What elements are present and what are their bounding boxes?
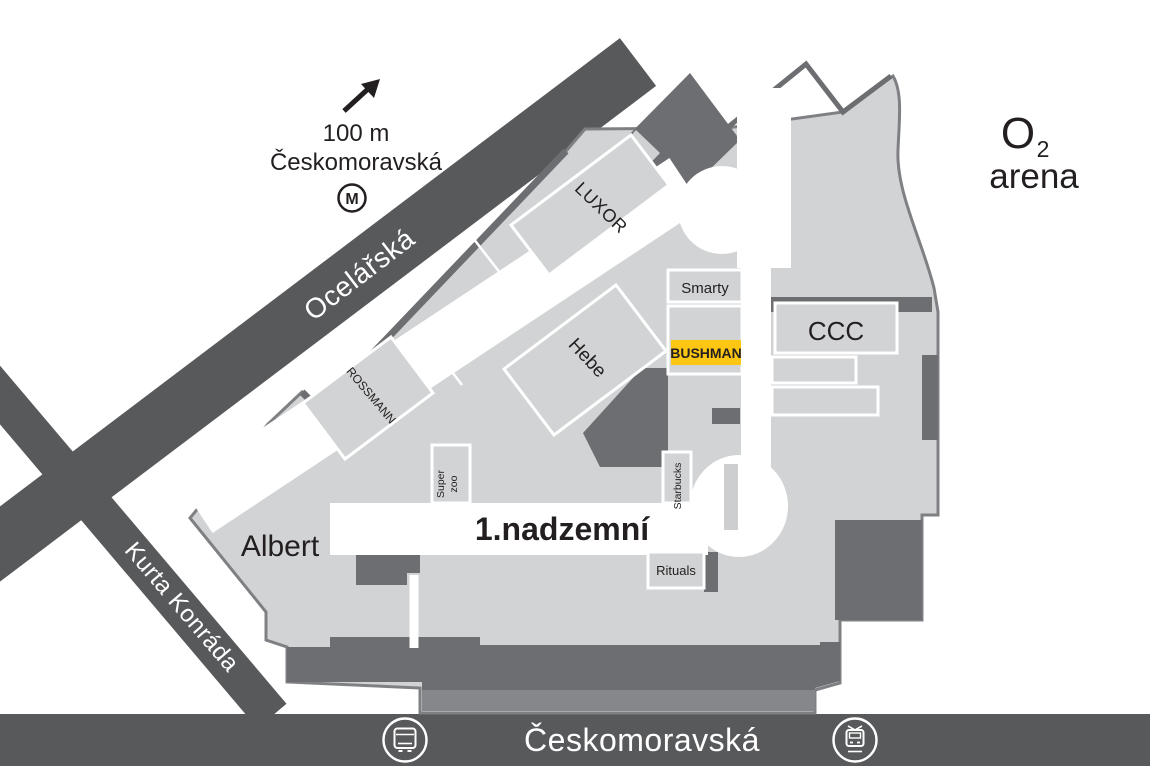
store-label-ccc: CCC bbox=[808, 316, 864, 346]
wall-strip-rituals-right bbox=[704, 552, 718, 592]
corridor-loop-island bbox=[724, 464, 738, 530]
mall-map: BUSHMAN LUXOR Hebe ROSSMANN Smarty CCC S… bbox=[0, 0, 1150, 766]
arena-name-main: O bbox=[1001, 109, 1035, 158]
store-label-smarty: Smarty bbox=[681, 280, 729, 297]
arena-name-line2: arena bbox=[989, 157, 1079, 196]
metro-station-name: Českomoravská bbox=[270, 148, 443, 176]
store-label-rituals: Rituals bbox=[656, 563, 696, 578]
wall-right-edge bbox=[922, 355, 938, 440]
street-label-ceskomoravska: Českomoravská bbox=[524, 722, 760, 758]
store-label-super-zoo-line2: zoo bbox=[448, 475, 460, 492]
wall-bottom-strip bbox=[422, 690, 815, 711]
store-block-unlabeled-1 bbox=[772, 357, 856, 383]
store-label-super-zoo-line1: Super bbox=[435, 469, 447, 498]
floor-label: 1.nadzemní bbox=[475, 511, 650, 547]
store-label-albert: Albert bbox=[241, 530, 320, 563]
metro-symbol: M bbox=[345, 191, 358, 208]
wall-block-right-lower bbox=[835, 520, 922, 620]
store-label-bushman: BUSHMAN bbox=[670, 345, 742, 361]
metro-distance: 100 m bbox=[323, 120, 390, 147]
store-label-starbucks: Starbucks bbox=[672, 463, 684, 510]
wall-pillar bbox=[712, 408, 740, 424]
store-block-unlabeled-2 bbox=[772, 387, 878, 415]
